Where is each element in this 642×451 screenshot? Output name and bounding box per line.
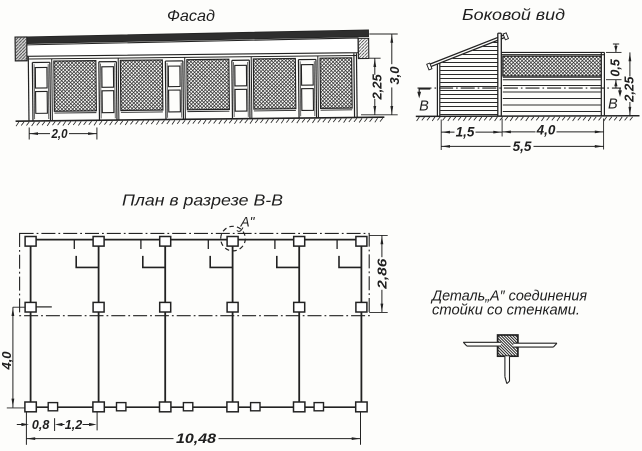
- svg-text:5,5: 5,5: [513, 139, 532, 154]
- svg-text:В: В: [608, 96, 618, 112]
- svg-text:4,0: 4,0: [0, 351, 14, 371]
- svg-text:0,5: 0,5: [608, 58, 622, 76]
- svg-text:А": А": [240, 215, 256, 230]
- svg-text:В: В: [419, 98, 429, 114]
- svg-text:Фасад: Фасад: [167, 8, 215, 25]
- svg-text:2,25: 2,25: [622, 76, 637, 103]
- svg-text:2,25: 2,25: [370, 73, 385, 100]
- svg-text:2,86: 2,86: [375, 258, 390, 290]
- svg-text:1,2: 1,2: [65, 418, 82, 432]
- svg-text:10,48: 10,48: [176, 431, 217, 446]
- svg-text:План в разрезе В-В: План в разрезе В-В: [122, 193, 283, 210]
- svg-text:4,0: 4,0: [536, 122, 556, 137]
- svg-text:3,0: 3,0: [387, 66, 402, 85]
- svg-text:0,8: 0,8: [32, 418, 49, 432]
- svg-text:2,0: 2,0: [51, 127, 68, 141]
- svg-text:1,5: 1,5: [456, 125, 475, 140]
- svg-text:стойки со стенками.: стойки со стенками.: [432, 302, 580, 319]
- svg-text:Боковой вид: Боковой вид: [462, 7, 565, 24]
